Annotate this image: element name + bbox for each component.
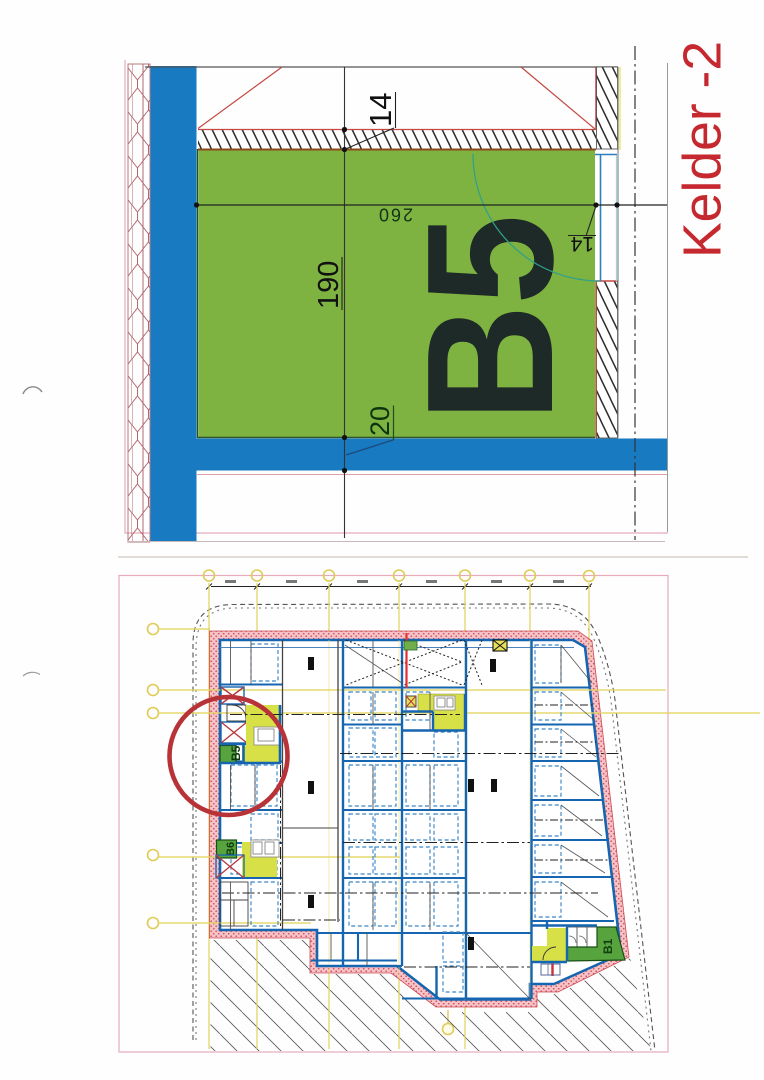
svg-text:B1: B1	[601, 938, 615, 954]
svg-text:14: 14	[570, 232, 594, 255]
svg-text:B6: B6	[225, 842, 237, 856]
svg-text:260: 260	[377, 205, 413, 225]
svg-text:B5: B5	[390, 214, 591, 421]
svg-text:14: 14	[363, 93, 398, 127]
svg-text:Kelder -2: Kelder -2	[674, 41, 733, 258]
svg-text:20: 20	[365, 406, 395, 436]
svg-text:B5: B5	[229, 745, 243, 761]
svg-text:190: 190	[313, 261, 345, 309]
